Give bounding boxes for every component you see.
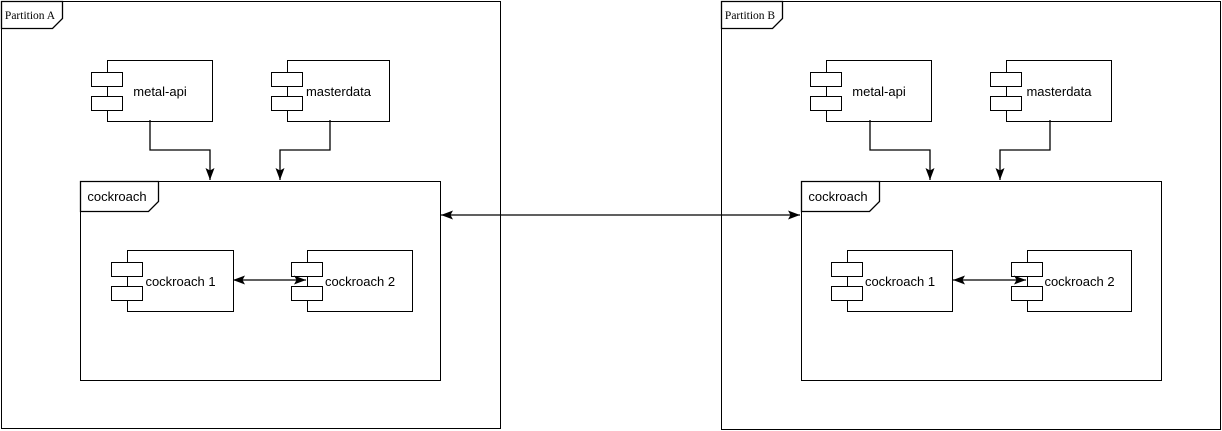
cockroach-container-b-label-tab: cockroach [801,181,882,213]
uml-component-diagram: Partition A metal-api masterdata cockroa… [0,0,1222,431]
component-cockroach-1-b: cockroach 1 [847,250,953,312]
component-label: masterdata [306,84,371,99]
partition-a-label: Partition A [5,10,56,22]
partition-b-label: Partition B [725,10,775,22]
partition-b-label-tab: Partition B [721,1,785,31]
component-port-icon [1011,262,1043,277]
component-metal-api-b: metal-api [826,60,932,122]
component-port-icon [291,262,323,277]
component-label: masterdata [1026,84,1091,99]
component-port-icon [91,72,123,87]
component-port-icon [271,96,303,111]
component-port-icon [831,286,863,301]
component-metal-api-a: metal-api [107,60,213,122]
component-label: cockroach 2 [1044,274,1114,289]
component-port-icon [111,286,143,301]
component-label: metal-api [133,84,186,99]
component-port-icon [831,262,863,277]
component-port-icon [291,286,323,301]
cockroach-container-b-label: cockroach [808,189,867,204]
cockroach-container-a-label-tab: cockroach [80,181,161,213]
component-label: cockroach 2 [325,274,395,289]
component-port-icon [111,262,143,277]
component-cockroach-1-a: cockroach 1 [127,250,234,312]
component-port-icon [990,96,1022,111]
component-port-icon [271,72,303,87]
component-port-icon [1011,286,1043,301]
partition-a-label-tab: Partition A [1,1,65,31]
component-cockroach-2-b: cockroach 2 [1027,250,1132,312]
component-cockroach-2-a: cockroach 2 [307,250,413,312]
component-label: cockroach 1 [865,274,935,289]
component-masterdata-b: masterdata [1006,60,1112,122]
component-label: cockroach 1 [145,274,215,289]
component-port-icon [91,96,123,111]
component-masterdata-a: masterdata [287,60,390,122]
component-port-icon [810,72,842,87]
component-label: metal-api [852,84,905,99]
cockroach-container-a-label: cockroach [87,189,146,204]
component-port-icon [810,96,842,111]
component-port-icon [990,72,1022,87]
